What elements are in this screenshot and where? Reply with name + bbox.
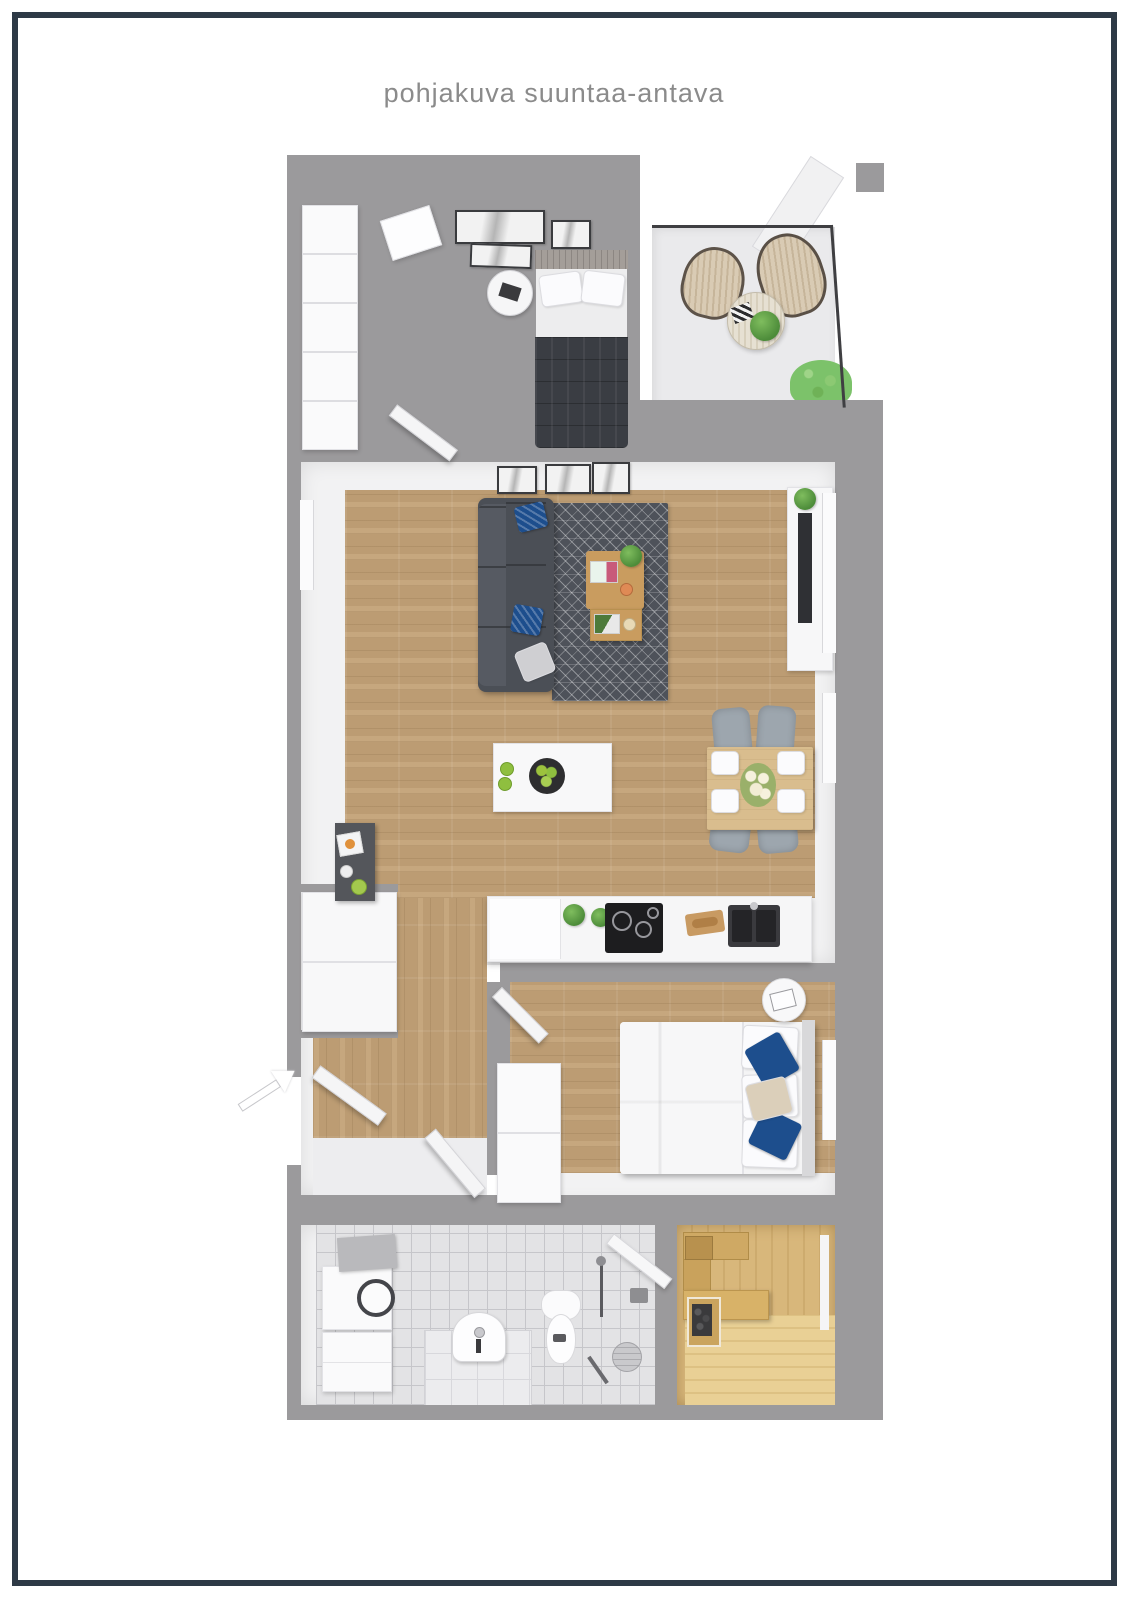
- wall-left-band: [287, 448, 301, 1420]
- green-fruit-2: [498, 777, 512, 791]
- dark-bed: [535, 250, 628, 448]
- hall-console-food: [344, 838, 356, 850]
- balcony-table: [727, 292, 785, 350]
- sauna-shelf: [685, 1236, 713, 1260]
- dining-table: [707, 747, 813, 830]
- hall-console: [335, 823, 375, 901]
- wall-right-band: [835, 408, 883, 1420]
- wardrobe: [302, 205, 358, 450]
- cooktop: [605, 903, 663, 953]
- bath-stool: [612, 1342, 642, 1372]
- kitchen-tall-cabinet: [490, 899, 561, 959]
- toilet: [541, 1290, 579, 1366]
- hall-console-plate: [336, 831, 363, 857]
- living-art-frame-3: [592, 462, 630, 494]
- sauna-door-glass: [820, 1235, 829, 1330]
- master-bed-duvet: [620, 1022, 744, 1174]
- washer-drum: [357, 1279, 395, 1317]
- sauna-heater-stones: [692, 1304, 712, 1336]
- place-setting-3: [711, 789, 739, 813]
- wall-bathroom-top-band: [287, 1195, 835, 1225]
- art-frame-small-left: [470, 243, 533, 269]
- place-setting-4: [777, 789, 805, 813]
- hall-cabinet: [302, 892, 397, 1032]
- sink-basin-left: [732, 910, 752, 942]
- living-art-frame-2: [545, 464, 591, 494]
- baguette: [691, 916, 718, 929]
- kitchen-island: [493, 743, 612, 812]
- cooktop-burner-large: [612, 911, 632, 931]
- master-bed-headboard: [802, 1020, 815, 1176]
- wall-sauna-divider: [655, 1225, 677, 1405]
- bedside-book: [769, 988, 797, 1011]
- coffee-table-book: [590, 561, 618, 583]
- window-living-left: [300, 500, 314, 590]
- side-table-book: [498, 282, 521, 301]
- sink-faucet: [750, 902, 758, 910]
- art-frame-feathers: [455, 210, 545, 244]
- cooktop-burner-small: [647, 907, 659, 919]
- balcony-railing-top: [652, 225, 832, 228]
- sink-basin-right: [756, 910, 776, 942]
- fruit-bowl: [529, 758, 565, 794]
- nesting-table-magazine: [594, 614, 620, 634]
- nesting-table-candle: [623, 618, 636, 631]
- round-bedside-table: [762, 978, 806, 1022]
- window-living-right-2: [822, 693, 836, 783]
- dark-bed-pillow-1: [538, 270, 584, 308]
- coffee-table-plant: [620, 545, 642, 567]
- floor-plan-page: pohjakuva suuntaa-antava: [0, 0, 1131, 1600]
- window-bedroom-right: [822, 1040, 836, 1140]
- round-side-table: [487, 270, 533, 316]
- nesting-table: [590, 609, 642, 641]
- entrance-arrow-shaft: [238, 1079, 281, 1112]
- herb-plant-1: [563, 904, 585, 926]
- sofa-back-cushions: [478, 504, 506, 686]
- hall-console-bowl: [351, 879, 367, 895]
- sofa: [478, 498, 554, 692]
- coffee-table-cup: [620, 583, 633, 596]
- place-setting-2: [777, 751, 805, 775]
- cutting-board: [685, 909, 726, 936]
- dark-bed-headboard: [535, 250, 628, 269]
- balcony-table-plant: [750, 311, 780, 341]
- sink-faucet-handle: [476, 1339, 481, 1353]
- washer: [322, 1266, 392, 1330]
- flower-centerpiece: [740, 763, 776, 807]
- hall-console-cup: [340, 865, 353, 878]
- toilet-flush: [553, 1334, 566, 1342]
- window-living-right-1: [822, 493, 836, 653]
- tv: [798, 513, 812, 623]
- wall-balcony-corner-square: [856, 163, 884, 192]
- kitchen-sink: [728, 905, 780, 947]
- shower-mixer: [630, 1288, 648, 1303]
- shower-head: [596, 1256, 606, 1266]
- dark-bed-pillow-2: [580, 270, 626, 308]
- wall-bathroom-bottom-band: [287, 1405, 883, 1420]
- dark-bed-duvet: [535, 337, 628, 448]
- art-frame-small-right: [551, 220, 591, 249]
- place-setting-1: [711, 751, 739, 775]
- sink-drain: [474, 1327, 485, 1338]
- pedestal-sink: [452, 1312, 506, 1362]
- cooktop-burner-medium: [635, 921, 652, 938]
- dresser: [497, 1063, 561, 1203]
- washer-countertop: [337, 1234, 397, 1272]
- sofa-blue-pillow-bottom: [510, 604, 544, 637]
- sauna-heater: [687, 1297, 721, 1347]
- living-art-frame-1: [497, 466, 537, 494]
- page-title: pohjakuva suuntaa-antava: [0, 78, 1108, 109]
- kitchen-counter: [487, 896, 812, 962]
- dryer: [322, 1332, 392, 1392]
- green-fruit-1: [500, 762, 514, 776]
- shower-rail: [600, 1262, 603, 1317]
- master-bed: [620, 1022, 815, 1174]
- coffee-table: [586, 551, 644, 609]
- tv-console-plant: [794, 488, 816, 510]
